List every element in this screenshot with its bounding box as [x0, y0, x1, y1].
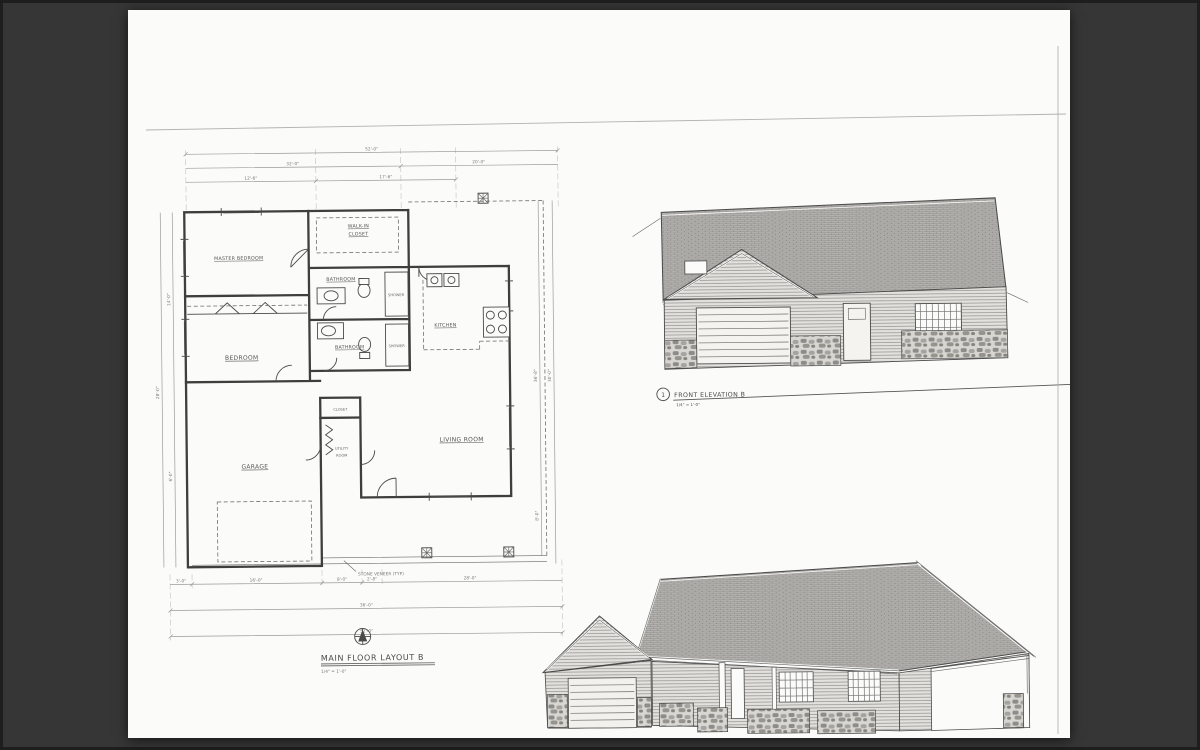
perspective-elevation — [542, 559, 1037, 736]
floor-plan-scale: 1/4" = 1'-0" — [321, 669, 346, 675]
room-label-living-room: LIVING ROOM — [440, 436, 484, 443]
dim-text: 32'-0" — [286, 161, 299, 167]
window-grid — [779, 672, 813, 702]
room-label-bathroom-master: BATHROOM — [326, 277, 355, 283]
porch-outline — [188, 193, 547, 566]
room-label-shower: SHOWER — [389, 344, 406, 348]
dim-text: 28'-0" — [464, 575, 477, 581]
garage-door-apron — [217, 501, 312, 562]
blueprint-page: 52'-0" 32'-0" 20'-0" 12'-6" 17'-6" 28'-0… — [128, 10, 1070, 738]
front-elevation-label: 1 FRONT ELEVATION B 1/4" = 1'-0" — [657, 384, 1070, 408]
toilet-symbol — [358, 283, 370, 297]
dim-text: 52'-0" — [365, 146, 378, 152]
roof-vent — [685, 261, 707, 274]
sink-symbol — [427, 274, 442, 287]
room-label-garage: GARAGE — [241, 463, 268, 470]
room-label-utility: UTILITY — [335, 447, 349, 451]
dim-text: 30'-0" — [547, 369, 553, 382]
stone-veneer — [659, 703, 693, 726]
window-grid — [848, 671, 880, 701]
dim-text: 6'-0" — [168, 471, 174, 481]
front-elevation: 1 FRONT ELEVATION B 1/4" = 1'-0" — [632, 197, 1070, 408]
vanity-symbol — [317, 288, 345, 304]
stone-veneer — [747, 709, 809, 734]
room-label-walk-in-closet: CLOSET — [349, 231, 369, 237]
dim-text: 12'-6" — [244, 176, 257, 182]
porch-post — [478, 193, 488, 203]
north-arrow-icon — [355, 628, 371, 644]
floor-plan-title: MAIN FLOOR LAYOUT B — [321, 653, 424, 663]
dimension-lines-left: 28'-0" 14'-0" 6'-0" — [153, 212, 176, 567]
sink-symbol — [444, 273, 459, 286]
dim-text: 8'-0" — [534, 511, 540, 521]
dim-text: 3'-0" — [176, 578, 186, 584]
dim-text: 20'-0" — [472, 159, 485, 165]
plan-doors — [215, 248, 436, 499]
porch-post — [719, 663, 726, 715]
dim-text: 17'-6" — [379, 174, 392, 180]
kitchen-fixtures — [423, 273, 510, 350]
room-label-walk-in-closet: WALK-IN — [348, 223, 369, 229]
floor-plan: 52'-0" 32'-0" 20'-0" 12'-6" 17'-6" 28'-0… — [153, 144, 566, 676]
stone-veneer — [817, 710, 875, 734]
dimension-lines-top: 52'-0" 32'-0" 20'-0" 12'-6" 17'-6" — [184, 144, 561, 210]
porch-post — [422, 548, 432, 558]
room-label-utility: ROOM — [336, 454, 347, 458]
room-label-shower: SHOWER — [388, 293, 405, 297]
entry-door — [731, 668, 745, 718]
entry-door — [843, 303, 871, 360]
dim-text: 8'-0" — [337, 577, 347, 583]
stove-symbol — [483, 307, 509, 337]
dim-text: 36'-8" — [533, 369, 539, 382]
porch-post — [772, 667, 776, 714]
stone-veneer — [697, 708, 727, 732]
room-label-kitchen: KITCHEN — [434, 322, 456, 328]
stone-pillar — [1003, 694, 1023, 728]
roof — [635, 562, 1029, 674]
room-label-closet: CLOSET — [333, 408, 348, 412]
porch-post — [504, 547, 514, 557]
blueprint-sheet: 52'-0" 32'-0" 20'-0" 12'-6" 17'-6" 28'-0… — [128, 10, 1070, 738]
stone-veneer — [791, 335, 841, 366]
dim-text: 28'-0" — [155, 386, 161, 399]
plan-walls — [184, 209, 512, 567]
scan-fold-line — [146, 114, 1066, 130]
dim-text: 14'-0" — [166, 293, 172, 306]
room-label-master-bedroom: MASTER BEDROOM — [214, 255, 263, 262]
stone-veneer — [547, 694, 567, 727]
plan-dashed-details — [186, 217, 402, 562]
detail-number: 1 — [661, 392, 665, 399]
dim-text: 36'-0" — [360, 602, 373, 608]
front-elevation-scale: 1/4" = 1'-0" — [676, 402, 700, 407]
stone-veneer — [637, 697, 651, 726]
room-label-bedroom: BEDROOM — [225, 355, 258, 362]
stone-veneer — [902, 330, 1008, 359]
stone-veneer — [665, 340, 697, 368]
dim-text: 16'-0" — [250, 578, 263, 584]
room-label-bathroom-hall: BATHROOM — [335, 344, 364, 350]
stone-veneer-note: STONE VENEER (TYP) — [358, 571, 404, 577]
